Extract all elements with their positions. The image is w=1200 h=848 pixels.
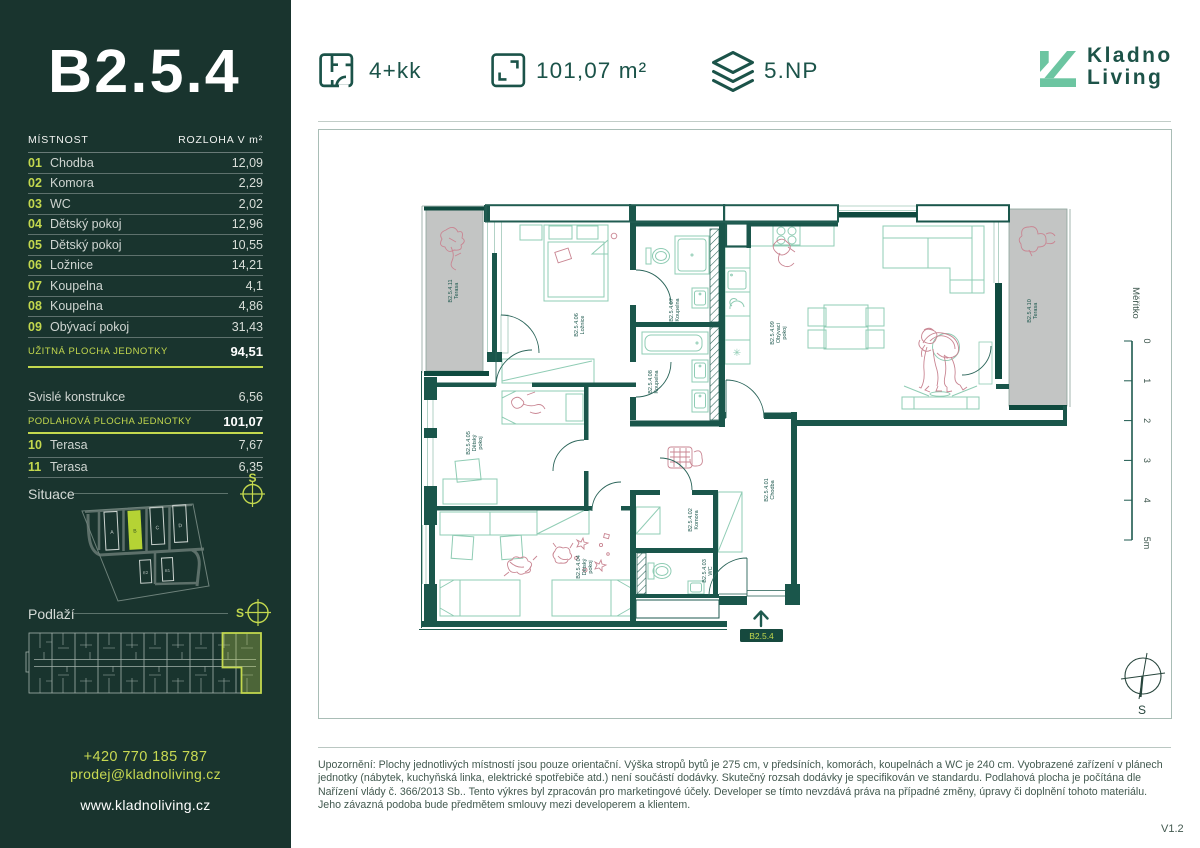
svg-text:A: A [110,530,114,536]
svg-text:4: 4 [1142,498,1152,503]
svg-text:B2.5.4.03WC: B2.5.4.03WC [702,559,714,583]
svg-text:✳: ✳ [733,348,741,359]
svg-text:B2.5.4.09Obývacípokoj: B2.5.4.09Obývacípokoj [770,321,788,345]
svg-text:5m: 5m [1142,537,1152,550]
svg-text:B2.5.4.02Komora: B2.5.4.02Komora [688,508,700,532]
svg-text:B2.5.4.11Terasa: B2.5.4.11Terasa [448,279,460,302]
svg-text:1: 1 [1142,378,1152,383]
svg-text:2: 2 [1142,418,1152,423]
svg-text:D: D [178,523,182,529]
svg-text:B2.5.4: B2.5.4 [749,631,774,641]
svg-text:Měřítko: Měřítko [1130,287,1141,319]
svg-text:S: S [1138,703,1146,717]
svg-text:B2.5.4.06Ložnice: B2.5.4.06Ložnice [574,313,586,337]
svg-text:B2.5.4.04Dětskýpokoj: B2.5.4.04Dětskýpokoj [576,555,594,579]
svg-text:B2.5.4.07Koupelna: B2.5.4.07Koupelna [669,297,681,321]
svg-text:S: S [236,606,244,620]
svg-text:C: C [155,525,159,531]
svg-text:3: 3 [1142,458,1152,463]
svg-text:B2.5.4.08Koupelna: B2.5.4.08Koupelna [648,369,660,393]
svg-text:B2.5.4.01Chodba: B2.5.4.01Chodba [764,478,776,502]
svg-text:0: 0 [1142,338,1152,343]
svg-text:B2.5.4.10Terasa: B2.5.4.10Terasa [1027,299,1039,323]
svg-text:E1: E1 [165,568,171,573]
svg-text:E2: E2 [143,570,149,575]
svg-text:B2.5.4.05Dětskýpokoj: B2.5.4.05Dětskýpokoj [466,431,484,455]
